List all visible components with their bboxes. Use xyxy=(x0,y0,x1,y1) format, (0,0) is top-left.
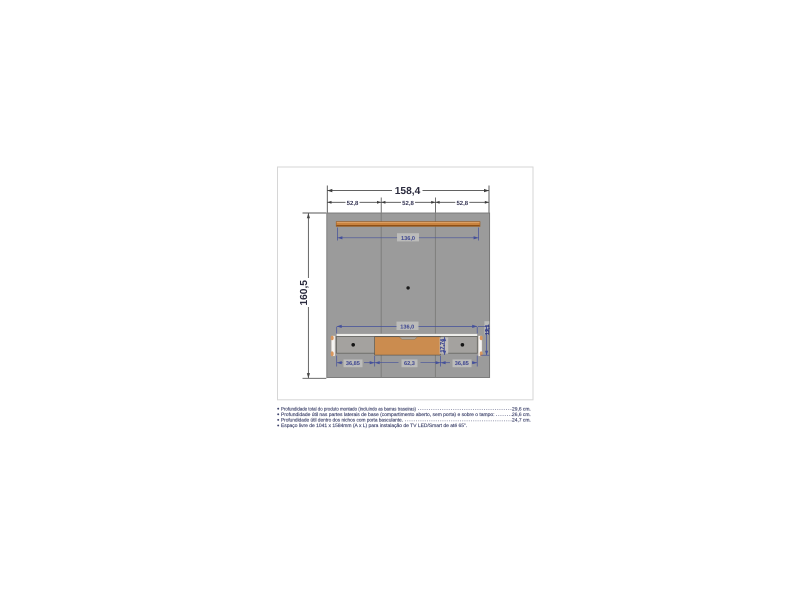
svg-text:52,8: 52,8 xyxy=(347,200,359,207)
svg-text:136,0: 136,0 xyxy=(401,236,415,242)
svg-text:24,7 cm.: 24,7 cm. xyxy=(512,418,531,424)
svg-text:158,4: 158,4 xyxy=(395,186,421,197)
svg-text:Espaço livre de 1041 x 1584mm: Espaço livre de 1041 x 1584mm (A x L) pa… xyxy=(281,423,467,429)
svg-text:62,3: 62,3 xyxy=(404,361,415,367)
svg-text:52,8: 52,8 xyxy=(402,200,414,207)
svg-text:29,6 cm.: 29,6 cm. xyxy=(512,406,531,412)
svg-text:136,0: 136,0 xyxy=(400,325,414,331)
svg-text:36,85: 36,85 xyxy=(346,361,360,367)
svg-text:Profundidade total do produto: Profundidade total do produto montado (i… xyxy=(281,406,416,412)
svg-text:36,85: 36,85 xyxy=(455,361,469,367)
svg-text:52,8: 52,8 xyxy=(456,200,468,207)
svg-text:Profundidade útil nas partes l: Profundidade útil nas partes laterais de… xyxy=(281,412,495,418)
svg-text:Profundidade útil dentro dos n: Profundidade útil dentro dos nichos com … xyxy=(281,418,403,424)
svg-text:17,74: 17,74 xyxy=(440,339,446,353)
svg-text:160,5: 160,5 xyxy=(299,280,310,306)
svg-text:26,6 cm.: 26,6 cm. xyxy=(512,412,531,418)
svg-text:12,1: 12,1 xyxy=(485,325,491,336)
